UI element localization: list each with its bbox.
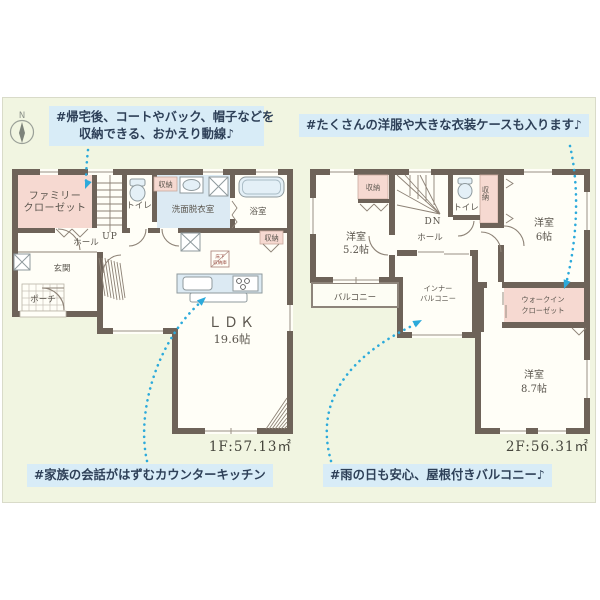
annotation-entry-flow-line1: #帰宅後、コートやバック、帽子などを	[56, 109, 257, 126]
background-panel	[2, 97, 596, 503]
annotation-balcony: #雨の日も安心、屋根付きバルコニー♪	[323, 464, 552, 487]
annotation-entry-flow-line2: 収納できる、おかえり動線♪	[56, 126, 257, 143]
annotation-closet: #たくさんの洋服や大きな衣装ケースも入ります♪	[299, 114, 589, 137]
annotation-kitchen: #家族の会話がはずむカウンターキッチン	[27, 464, 273, 487]
annotation-entry-flow: #帰宅後、コートやバック、帽子などを 収納できる、おかえり動線♪	[49, 106, 264, 146]
